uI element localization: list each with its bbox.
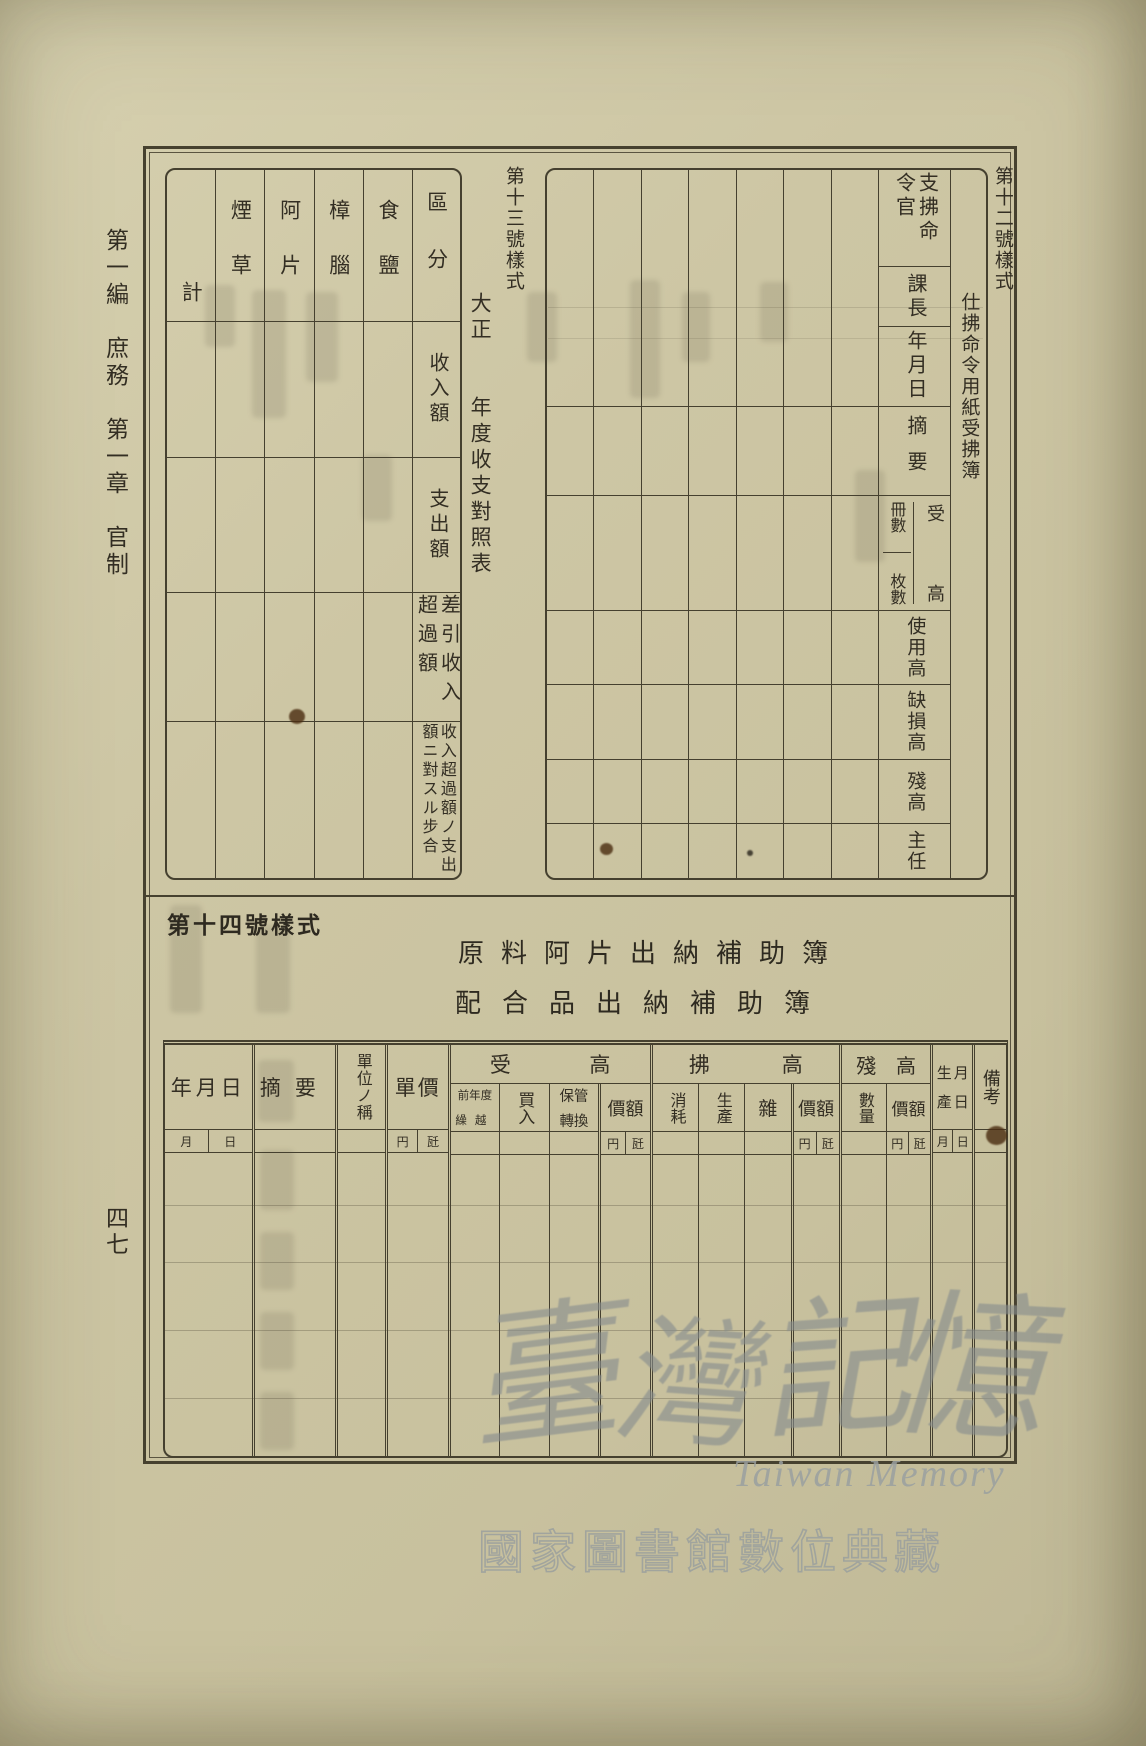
blank-cell <box>737 684 783 759</box>
form14-header-unit-price: 單價 <box>388 1045 448 1130</box>
form13-label: 第十三號樣式 <box>502 166 524 292</box>
form12-high-char: 高 <box>924 584 945 602</box>
blank-cell <box>547 495 593 609</box>
bleed-line <box>165 1205 1006 1206</box>
form14-balance-subcolumns: 數量 價額 円 瓩 <box>842 1084 931 1456</box>
prod-date-char: 日 <box>954 1091 969 1112</box>
high-char: 高 <box>782 1049 803 1079</box>
unit-kg: 瓩 <box>625 1132 650 1154</box>
blank-cell <box>832 495 878 609</box>
section-divider-line <box>146 895 1014 897</box>
blank-cell <box>784 406 830 496</box>
custody-line1: 保管 <box>559 1085 588 1106</box>
prev-year-line1: 前年度 <box>458 1087 493 1103</box>
form14-units-empty <box>550 1132 599 1155</box>
form12-title: 仕拂命令用紙受拂簿 <box>958 292 980 481</box>
blank-cell <box>784 684 830 759</box>
blank-column-body <box>975 1153 1006 1456</box>
form14-group-balance-label: 殘 高 <box>842 1045 931 1084</box>
form14-header-summary: 摘要 <box>255 1045 336 1130</box>
blank-cell <box>594 684 640 759</box>
blank-cell <box>364 721 412 878</box>
blank-cell <box>547 759 593 824</box>
form14-header-consumption: 消耗 <box>653 1084 698 1132</box>
blank-cell <box>784 170 830 406</box>
ink-blot <box>289 709 305 724</box>
blank-cell <box>167 457 215 591</box>
form14-units-balance-value: 円 瓩 <box>887 1132 931 1155</box>
blank-column-body <box>338 1153 385 1456</box>
blank-cell <box>642 684 688 759</box>
blank-cell <box>689 610 735 685</box>
form14-col-balance-value: 價額 円 瓩 <box>886 1084 931 1456</box>
blank-cell <box>737 170 783 406</box>
form14-header-prev-year: 前年度 繰越 <box>451 1084 500 1132</box>
blank-column-body <box>933 1153 972 1456</box>
blank-cell <box>832 823 878 878</box>
form14-group-receipts: 受 高 前年度 繰越 買入 <box>448 1045 650 1456</box>
blank-cell <box>832 170 878 406</box>
form14-units-empty <box>699 1132 744 1155</box>
form14-col-unit-price: 單價 円 瓩 <box>385 1045 448 1456</box>
form13-header-expense: 支出額 <box>413 457 460 591</box>
unit-kg: 瓩 <box>908 1132 930 1154</box>
blank-cell <box>737 610 783 685</box>
blank-cell <box>315 457 363 591</box>
form14-header-payment-value: 價額 <box>794 1084 839 1132</box>
blank-cell <box>216 457 264 591</box>
blank-column-body <box>745 1155 790 1456</box>
blank-cell <box>737 759 783 824</box>
form12-receive-char: 受 <box>924 504 945 522</box>
form14-header-remarks: 備考 <box>975 1045 1006 1130</box>
form14-title-compound: 配合品出納補助簿 <box>455 983 831 1020</box>
blank-column-body <box>500 1155 549 1456</box>
ink-blot <box>986 1126 1007 1145</box>
blank-cell <box>689 823 735 878</box>
form14-group-payments-label: 拂 高 <box>653 1045 839 1084</box>
form13-header-net-excess: 差引收入超過額 <box>413 592 460 721</box>
form12-header-balance: 殘高 <box>879 759 950 824</box>
form12-receive-subdivider <box>913 502 914 603</box>
blank-column-body <box>601 1155 650 1456</box>
blank-column-body <box>699 1155 744 1456</box>
form14-col-purchase: 買入 <box>499 1084 549 1456</box>
form14-col-unit-name: 單位ノ稱 <box>335 1045 385 1456</box>
form14-receipts-subcolumns: 前年度 繰越 買入 保管 轉換 <box>451 1084 650 1456</box>
form12-header-receive-high: 受 高 冊數 枚數 <box>879 495 950 609</box>
ink-blot <box>600 843 613 855</box>
form14-units-empty <box>451 1132 500 1155</box>
blank-column-body <box>550 1155 599 1456</box>
form14-group-payments: 拂 高 消耗 生產 雜 <box>650 1045 839 1456</box>
blank-column-body <box>165 1153 252 1456</box>
prod-date-char: 月 <box>954 1062 969 1083</box>
form12-blank-column <box>783 170 830 878</box>
form12-sheets-label: 枚數 <box>886 573 904 605</box>
form14-col-prev-year: 前年度 繰越 <box>451 1084 500 1456</box>
blank-cell <box>689 684 735 759</box>
pay-char: 拂 <box>689 1049 710 1079</box>
form14-header-receipt-value: 價額 <box>601 1084 650 1132</box>
form12-label: 第十二號樣式 <box>991 166 1013 292</box>
form14-header-custody-transfer: 保管 轉換 <box>550 1084 599 1132</box>
form14-col-custody-transfer: 保管 轉換 <box>549 1084 599 1456</box>
blank-cell <box>364 457 412 591</box>
blank-cell <box>167 321 215 457</box>
form14-title-raw-opium: 原料阿片出納補助簿 <box>458 933 845 970</box>
form14-units-empty <box>338 1130 385 1153</box>
blank-cell <box>642 495 688 609</box>
form14-units-empty <box>745 1132 790 1155</box>
blank-cell <box>216 592 264 721</box>
unit-month: 月 <box>165 1130 208 1152</box>
page-number: 四七 <box>101 1206 127 1258</box>
form14-col-date: 年月日 月 日 <box>165 1045 252 1456</box>
form12-header-chief: 主任 <box>879 823 950 878</box>
unit-kg: 瓩 <box>816 1132 839 1154</box>
unit-day: 日 <box>952 1130 972 1152</box>
form14-units-empty <box>653 1132 698 1155</box>
form12-header-shortage: 缺損高 <box>879 684 950 759</box>
form14-header-misc: 雜 <box>745 1084 790 1132</box>
form14-units-unit-price: 円 瓩 <box>388 1130 448 1153</box>
margin-chapter-label: 第一編 庶務 第一章 官制 <box>101 228 127 579</box>
form12-books-label: 冊數 <box>886 501 904 533</box>
form14-header-purchase: 買入 <box>500 1084 549 1132</box>
form14-units-empty <box>500 1132 549 1155</box>
blank-cell <box>167 592 215 721</box>
form14-header-quantity: 數量 <box>842 1084 886 1132</box>
blank-cell <box>315 321 363 457</box>
form14-units-production-date: 月 日 <box>933 1130 972 1153</box>
form12-blank-column <box>688 170 735 878</box>
blank-cell <box>594 759 640 824</box>
blank-cell <box>784 610 830 685</box>
blank-cell <box>642 170 688 406</box>
form12-blank-column <box>736 170 783 878</box>
form14-header-production-date: 生 月 產 日 <box>933 1045 972 1130</box>
blank-cell <box>547 610 593 685</box>
blank-cell <box>547 170 593 406</box>
blank-cell <box>832 684 878 759</box>
blank-cell <box>547 823 593 878</box>
form14-col-summary: 摘要 <box>252 1045 336 1456</box>
blank-cell <box>737 495 783 609</box>
blank-cell <box>642 406 688 496</box>
blank-cell <box>784 759 830 824</box>
bleed-line <box>165 1262 1006 1263</box>
blank-cell <box>364 592 412 721</box>
bleed-line <box>165 1398 1006 1399</box>
form14-col-quantity: 數量 <box>842 1084 886 1456</box>
scanned-document-page: 第一編 庶務 第一章 官制 四七 第十二號樣式 支拂命令官 <box>0 0 1146 1746</box>
blank-cell <box>689 170 735 406</box>
form13-category-tobacco: 煙草 <box>216 170 264 321</box>
form14-header-unit-name: 單位ノ稱 <box>338 1045 385 1130</box>
form13-category-opium: 阿片 <box>265 170 313 321</box>
blank-cell <box>689 406 735 496</box>
blank-cell <box>642 823 688 878</box>
form14-table: 年月日 月 日 摘要 單位ノ稱 單價 円 瓩 <box>163 1040 1008 1458</box>
blank-column-body <box>388 1153 448 1456</box>
form14-col-consumption: 消耗 <box>653 1084 698 1456</box>
form13-column-opium: 阿片 <box>264 170 313 878</box>
form12-books-sheets-divider <box>883 552 911 553</box>
blank-column-body <box>794 1155 839 1456</box>
form12-header-officer: 支拂命令官 <box>879 170 950 266</box>
ink-dot <box>747 850 753 856</box>
form13-header-income: 收入額 <box>413 321 460 457</box>
blank-cell <box>547 406 593 496</box>
form12-title-column: 仕拂命令用紙受拂簿 <box>950 170 986 878</box>
blank-column-body <box>887 1155 931 1456</box>
blank-cell <box>216 721 264 878</box>
production-date-grid: 生 月 產 日 <box>937 1062 969 1112</box>
blank-cell <box>265 457 313 591</box>
form14-col-production-date: 生 月 產 日 月 日 <box>930 1045 972 1456</box>
blank-cell <box>832 406 878 496</box>
form12-header-column: 支拂命令官 課長 年月日 摘要 受 高 冊數 枚數 使用高 <box>878 170 950 878</box>
form14-units-empty <box>255 1130 336 1153</box>
blank-cell <box>689 495 735 609</box>
unit-yen: 円 <box>601 1132 625 1154</box>
form12-table: 支拂命令官 課長 年月日 摘要 受 高 冊數 枚數 使用高 <box>545 168 988 880</box>
unit-yen: 円 <box>887 1132 908 1154</box>
blank-cell <box>737 406 783 496</box>
form14-units-date: 月 日 <box>165 1130 252 1153</box>
blank-cell <box>594 495 640 609</box>
blank-cell <box>547 684 593 759</box>
blank-cell <box>265 321 313 457</box>
form13-title: 大正 年度收支對照表 <box>468 292 492 582</box>
form13-header-ratio: 收入超過額ノ支出額ニ對スル步合 <box>413 721 460 878</box>
high-char: 高 <box>589 1049 610 1079</box>
blank-cell <box>167 721 215 878</box>
blank-column-body <box>451 1155 500 1456</box>
form12-blank-column <box>547 170 593 878</box>
form14-col-remarks: 備考 <box>972 1045 1006 1456</box>
form14-group-balance: 殘 高 數量 價額 円 瓩 <box>839 1045 931 1456</box>
unit-day: 日 <box>208 1130 252 1152</box>
blank-cell <box>216 321 264 457</box>
form14-group-receipts-label: 受 高 <box>451 1045 650 1084</box>
form14-units-payment-value: 円 瓩 <box>794 1132 839 1155</box>
form12-header-used: 使用高 <box>879 610 950 685</box>
blank-cell <box>784 823 830 878</box>
form14-label: 第十四號樣式 <box>167 906 323 940</box>
form14-col-production: 生產 <box>698 1084 744 1456</box>
blank-cell <box>832 759 878 824</box>
unit-yen: 円 <box>388 1130 417 1152</box>
blank-cell <box>737 823 783 878</box>
watermark-library: 國家圖書館數位典藏 <box>478 1516 946 1582</box>
blank-cell <box>832 610 878 685</box>
form14-header-balance-value: 價額 <box>887 1084 931 1132</box>
blank-cell <box>594 170 640 406</box>
form13-category-salt: 食鹽 <box>364 170 412 321</box>
form14-col-payment-value: 價額 円 瓩 <box>791 1084 839 1456</box>
bleed-line <box>548 338 983 339</box>
form13-column-camphor: 樟腦 <box>314 170 363 878</box>
prod-date-char: 生 <box>937 1062 952 1083</box>
blank-cell <box>265 592 313 721</box>
blank-cell <box>642 610 688 685</box>
form14-col-receipt-value: 價額 円 瓩 <box>598 1084 650 1456</box>
blank-cell <box>594 610 640 685</box>
form12-blank-column <box>641 170 688 878</box>
blank-cell <box>784 495 830 609</box>
form13-table: 計 煙草 阿片 樟腦 食鹽 區分 收入額 支出額 差引收入超過額 收入超過額ノ支… <box>165 168 462 880</box>
blank-cell <box>642 759 688 824</box>
blank-cell <box>265 721 313 878</box>
bleed-line <box>165 1330 1006 1331</box>
form12-header-section-chief: 課長 <box>879 266 950 326</box>
bleed-line <box>548 307 983 308</box>
form14-units-empty <box>842 1132 886 1155</box>
blank-cell <box>315 592 363 721</box>
form12-header-officer-label: 支拂命令官 <box>891 172 937 264</box>
receive-char: 受 <box>490 1049 511 1079</box>
form14-header-production: 生產 <box>699 1084 744 1132</box>
blank-column-body <box>255 1153 336 1456</box>
form14-col-misc: 雜 <box>744 1084 790 1456</box>
form13-category-camphor: 樟腦 <box>315 170 363 321</box>
blank-column-body <box>653 1155 698 1456</box>
form12-blank-column <box>831 170 878 878</box>
form14-header-date: 年月日 <box>165 1045 252 1130</box>
form13-category-total: 計 <box>167 170 215 321</box>
blank-cell <box>315 721 363 878</box>
form13-header-column: 區分 收入額 支出額 差引收入超過額 收入超過額ノ支出額ニ對スル步合 <box>412 170 460 878</box>
form13-column-tobacco: 煙草 <box>215 170 264 878</box>
form14-payments-subcolumns: 消耗 生產 雜 價額 円 瓩 <box>653 1084 839 1456</box>
prod-date-char: 產 <box>937 1091 952 1112</box>
blank-cell <box>689 759 735 824</box>
form14-units-receipt-value: 円 瓩 <box>601 1132 650 1155</box>
custody-line2: 轉換 <box>559 1110 588 1131</box>
form13-column-total: 計 <box>167 170 215 878</box>
blank-cell <box>594 406 640 496</box>
form13-header-category: 區分 <box>413 170 460 321</box>
form13-column-salt: 食鹽 <box>363 170 412 878</box>
blank-cell <box>364 321 412 457</box>
prev-year-line2: 繰越 <box>455 1112 494 1128</box>
unit-yen: 円 <box>794 1132 816 1154</box>
form12-header-summary: 摘要 <box>879 406 950 496</box>
unit-kg: 瓩 <box>417 1130 447 1152</box>
blank-column-body <box>842 1155 886 1456</box>
unit-month: 月 <box>933 1130 952 1152</box>
form12-blank-column <box>593 170 640 878</box>
